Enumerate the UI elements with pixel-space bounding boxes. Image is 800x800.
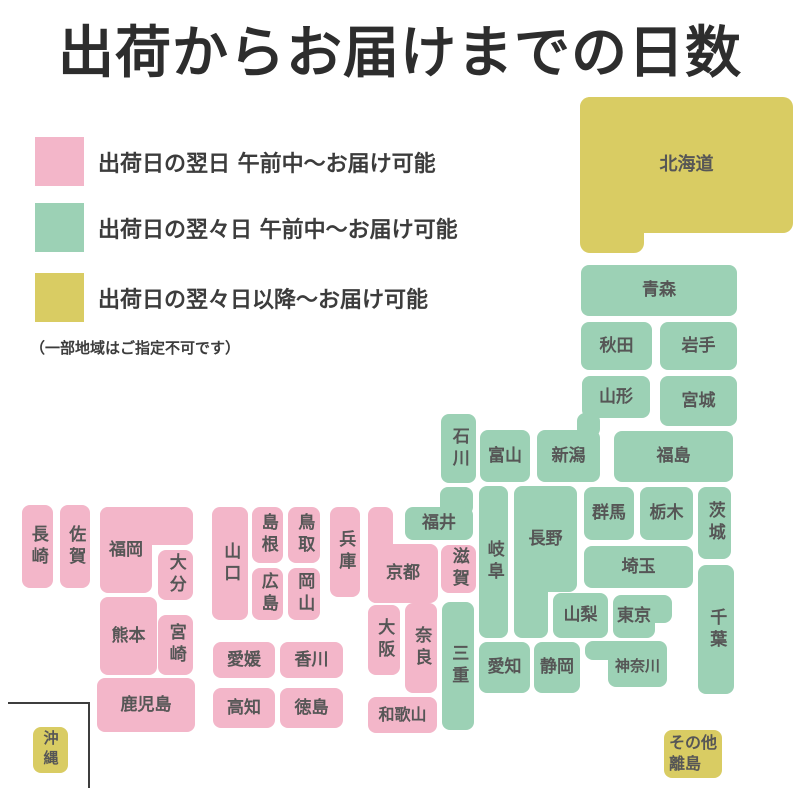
pref-miyagi-label: 宮城 <box>682 391 716 411</box>
other-islands: その他 離島 <box>664 730 722 778</box>
pref-tottori: 鳥取 <box>288 507 320 563</box>
pref-ibaraki-label: 茨城 <box>704 501 724 545</box>
pref-nara: 奈良 <box>405 603 437 693</box>
pref-saitama-label: 埼玉 <box>622 557 656 577</box>
pref-akita: 秋田 <box>581 322 652 370</box>
pref-kanagawa-label: 神奈川 <box>615 657 660 675</box>
pref-kumamoto-label: 熊本 <box>112 626 146 646</box>
pref-ishikawa: 石川 <box>441 414 476 483</box>
pref-shimane-label: 島根 <box>257 513 277 557</box>
pref-kanagawa: 神奈川 <box>608 645 667 687</box>
pref-hiroshima: 広島 <box>252 568 283 620</box>
delivery-days-infographic: 出荷からお届けまでの日数 出荷日の翌日 午前中〜お届け可能 出荷日の翌々日 午前… <box>0 0 800 800</box>
pref-shiga: 滋賀 <box>441 545 476 593</box>
pref-shizuoka: 静岡 <box>534 642 580 693</box>
pref-miyazaki: 宮崎 <box>158 615 193 675</box>
pref-okayama: 岡山 <box>288 568 320 620</box>
pref-akita-label: 秋田 <box>600 336 634 356</box>
pref-shizuoka-label: 静岡 <box>540 657 574 677</box>
pref-wakayama-label: 和歌山 <box>378 705 426 724</box>
pref-chiba: 千葉 <box>698 565 734 694</box>
pref-saitama: 埼玉 <box>584 546 693 588</box>
pref-nara-label: 奈良 <box>411 626 431 670</box>
pref-kyoto: 京都 <box>368 544 438 603</box>
pref-ishikawa-label: 石川 <box>448 427 468 471</box>
pref-toyama-label: 富山 <box>488 446 522 466</box>
pref-gunma: 群馬 <box>584 487 634 540</box>
pref-iwate-label: 岩手 <box>682 336 716 356</box>
pref-shimane: 島根 <box>252 507 283 563</box>
pref-tokushima-label: 徳島 <box>295 698 329 718</box>
pref-okinawa: 沖縄 <box>33 727 68 773</box>
pref-gifu: 岐阜 <box>479 486 508 638</box>
pref-ehime-label: 愛媛 <box>227 650 261 670</box>
legend-swatch-yellow <box>35 273 84 322</box>
pref-yamanashi-label: 山梨 <box>564 605 598 625</box>
pref-osaka-label: 大阪 <box>374 618 394 662</box>
pref-aichi: 愛知 <box>479 642 530 693</box>
pref-hyogo: 兵庫 <box>330 507 360 597</box>
okinawa-box-right-line <box>88 702 90 788</box>
pref-yamagata: 山形 <box>582 376 650 418</box>
pref-hokkaido-label: 北海道 <box>660 154 714 176</box>
pref-gifu-label: 岐阜 <box>483 540 503 584</box>
pref-yamaguchi-label: 山口 <box>220 542 240 586</box>
pref-chiba-label: 千葉 <box>706 608 726 652</box>
legend-item-second-day: 出荷日の翌々日 午前中〜お届け可能 <box>35 203 458 252</box>
pref-niigata: 新潟 <box>537 430 600 482</box>
pref-kochi-label: 高知 <box>227 698 261 718</box>
page-title: 出荷からお届けまでの日数 <box>0 8 800 89</box>
other-islands-label: その他 離島 <box>669 733 717 775</box>
pref-oita-label: 大分 <box>165 553 185 597</box>
legend-item-second-day-or-later: 出荷日の翌々日以降〜お届け可能 <box>35 273 428 322</box>
pref-kagoshima: 鹿児島 <box>97 678 195 732</box>
pref-nagasaki: 長崎 <box>22 505 53 588</box>
pref-hiroshima-label: 広島 <box>257 572 277 616</box>
pref-fukui: 福井 <box>405 507 473 540</box>
legend-label-next-day: 出荷日の翌日 午前中〜お届け可能 <box>98 146 436 178</box>
pref-saga: 佐賀 <box>60 505 90 588</box>
pref-ibaraki: 茨城 <box>698 487 731 559</box>
pref-kumamoto: 熊本 <box>100 597 157 675</box>
legend-swatch-green <box>35 203 84 252</box>
pref-hokkaido: 北海道 <box>580 97 793 233</box>
legend-label-second-day-or-later: 出荷日の翌々日以降〜お届け可能 <box>98 282 428 314</box>
pref-aichi-label: 愛知 <box>488 657 522 677</box>
legend-note: （一部地域はご指定不可です） <box>30 337 240 358</box>
pref-kagawa-label: 香川 <box>295 650 329 670</box>
pref-aomori-label: 青森 <box>642 280 676 300</box>
pref-nagano-label: 長野 <box>529 529 563 549</box>
pref-tochigi-label: 栃木 <box>650 503 684 523</box>
pref-kochi: 高知 <box>213 688 275 728</box>
pref-saga-label: 佐賀 <box>65 525 85 569</box>
pref-fukushima: 福島 <box>614 431 733 482</box>
pref-miyagi: 宮城 <box>660 376 737 426</box>
pref-shiga-label: 滋賀 <box>448 547 468 591</box>
pref-toyama: 富山 <box>480 430 530 482</box>
pref-fukushima-label: 福島 <box>657 446 691 466</box>
pref-fukuoka: 福岡 <box>100 507 152 593</box>
pref-okinawa-label: 沖縄 <box>42 730 60 770</box>
pref-kagawa: 香川 <box>280 642 343 678</box>
pref-nagasaki-label: 長崎 <box>27 525 47 569</box>
pref-yamaguchi: 山口 <box>212 507 248 620</box>
pref-aomori: 青森 <box>581 265 737 316</box>
pref-iwate: 岩手 <box>660 322 737 370</box>
pref-nagano: 長野 <box>514 486 577 592</box>
pref-osaka: 大阪 <box>368 605 400 675</box>
pref-fukui-label: 福井 <box>422 513 456 533</box>
pref-miyazaki-label: 宮崎 <box>165 623 185 667</box>
pref-ehime: 愛媛 <box>213 642 275 678</box>
legend-label-second-day: 出荷日の翌々日 午前中〜お届け可能 <box>98 212 458 244</box>
pref-yamagata-label: 山形 <box>599 387 633 407</box>
pref-mie-label: 三重 <box>448 644 468 688</box>
pref-yamanashi: 山梨 <box>553 593 608 638</box>
pref-niigata-label: 新潟 <box>552 446 586 466</box>
legend-item-next-day: 出荷日の翌日 午前中〜お届け可能 <box>35 137 436 186</box>
pref-hyogo-label: 兵庫 <box>335 530 355 574</box>
okinawa-box-top-line <box>8 702 90 704</box>
pref-oita: 大分 <box>158 550 193 600</box>
pref-okayama-label: 岡山 <box>294 572 314 616</box>
pref-wakayama: 和歌山 <box>368 697 437 733</box>
pref-gunma-label: 群馬 <box>592 503 626 523</box>
pref-tokushima: 徳島 <box>280 688 343 728</box>
pref-kyoto-label: 京都 <box>386 563 420 583</box>
pref-tochigi: 栃木 <box>640 487 693 540</box>
pref-tokyo: 東京 <box>613 595 655 638</box>
legend-swatch-pink <box>35 137 84 186</box>
pref-tottori-label: 鳥取 <box>294 513 314 557</box>
pref-mie: 三重 <box>442 602 474 730</box>
pref-fukuoka-label: 福岡 <box>109 540 143 560</box>
pref-tokyo-label: 東京 <box>617 606 651 626</box>
pref-kagoshima-label: 鹿児島 <box>121 695 172 715</box>
